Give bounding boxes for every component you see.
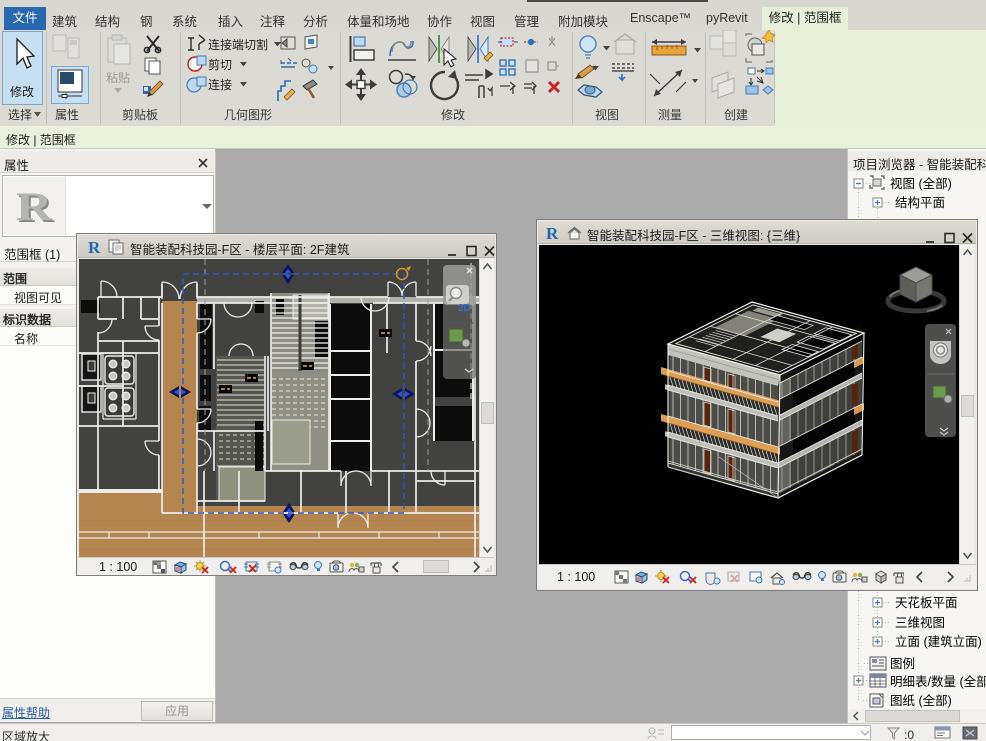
svg-text:创建: 创建	[724, 108, 748, 122]
svg-text:连接端切割: 连接端切割	[208, 37, 268, 52]
svg-text:几何图形: 几何图形	[224, 108, 272, 122]
svg-text:修改: 修改	[441, 107, 465, 122]
svg-text:剪贴板: 剪贴板	[122, 107, 158, 122]
svg-text:视图: 视图	[595, 107, 619, 122]
svg-text:选择: 选择	[8, 108, 32, 122]
svg-text:属性: 属性	[55, 108, 79, 122]
svg-text:R: R	[546, 225, 559, 241]
svg-text:R: R	[16, 185, 54, 229]
svg-text:明细表/数量 (全部): 明细表/数量 (全部)	[890, 674, 986, 689]
svg-text:视图 (全部): 视图 (全部)	[890, 176, 952, 191]
svg-text:图例: 图例	[890, 657, 915, 671]
svg-text:R: R	[88, 239, 101, 255]
svg-text:三维视图: 三维视图	[895, 615, 945, 630]
svg-text:结构平面: 结构平面	[895, 195, 945, 210]
svg-text:图纸 (全部): 图纸 (全部)	[890, 693, 952, 708]
svg-text:测量: 测量	[658, 108, 682, 122]
svg-text:天花板平面: 天花板平面	[895, 595, 958, 610]
svg-text:立面 (建筑立面): 立面 (建筑立面)	[895, 634, 982, 649]
svg-text:修改: 修改	[10, 84, 34, 99]
svg-text:2D: 2D	[458, 303, 471, 314]
svg-text:连接: 连接	[208, 77, 232, 92]
svg-text:剪切: 剪切	[208, 57, 232, 72]
svg-text:粘贴: 粘贴	[106, 70, 130, 85]
